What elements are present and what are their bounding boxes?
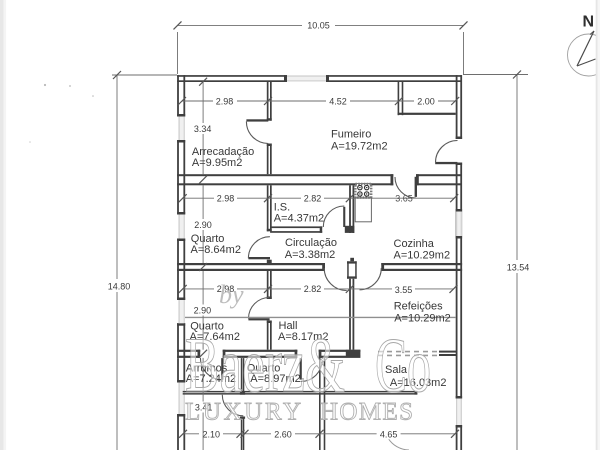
- svg-text:A=4.37m2: A=4.37m2: [274, 212, 324, 224]
- svg-text:N: N: [583, 14, 595, 31]
- svg-text:by: by: [219, 280, 244, 309]
- svg-text:10.05: 10.05: [307, 21, 330, 31]
- svg-text:A=10.29m2: A=10.29m2: [394, 249, 451, 261]
- svg-text:3.55: 3.55: [395, 285, 413, 295]
- svg-text:Co: Co: [375, 321, 431, 408]
- svg-text:2.82: 2.82: [304, 194, 322, 204]
- svg-text:2.82: 2.82: [304, 284, 322, 294]
- svg-text:A=9.95m2: A=9.95m2: [192, 157, 242, 169]
- svg-text:Fumeiro: Fumeiro: [331, 128, 371, 140]
- svg-text:3.65: 3.65: [395, 194, 413, 204]
- svg-text:2.98: 2.98: [216, 96, 234, 106]
- svg-text:2.60: 2.60: [274, 429, 292, 439]
- svg-text:A=19.72m2: A=19.72m2: [331, 140, 388, 152]
- svg-text:Cozinha: Cozinha: [394, 238, 435, 250]
- svg-text:2.90: 2.90: [194, 220, 212, 230]
- svg-text:2.98: 2.98: [217, 194, 235, 204]
- svg-text:2.10: 2.10: [203, 429, 221, 439]
- svg-text:14.80: 14.80: [108, 282, 131, 292]
- svg-text:4.65: 4.65: [380, 429, 398, 439]
- svg-text:2.90: 2.90: [194, 306, 212, 316]
- svg-text:Quarto: Quarto: [191, 233, 225, 245]
- svg-text:4.52: 4.52: [329, 96, 347, 106]
- svg-text:A=8.64m2: A=8.64m2: [191, 244, 241, 256]
- svg-text:Baerz&: Baerz&: [185, 321, 345, 408]
- svg-text:3.34: 3.34: [194, 124, 212, 134]
- svg-text:Circulação: Circulação: [285, 237, 337, 249]
- svg-text:Refeições: Refeições: [394, 301, 443, 313]
- svg-text:2.00: 2.00: [417, 96, 435, 106]
- svg-text:A=3.38m2: A=3.38m2: [285, 249, 335, 261]
- svg-text:HOMES: HOMES: [320, 399, 413, 426]
- svg-text:13.54: 13.54: [507, 263, 530, 273]
